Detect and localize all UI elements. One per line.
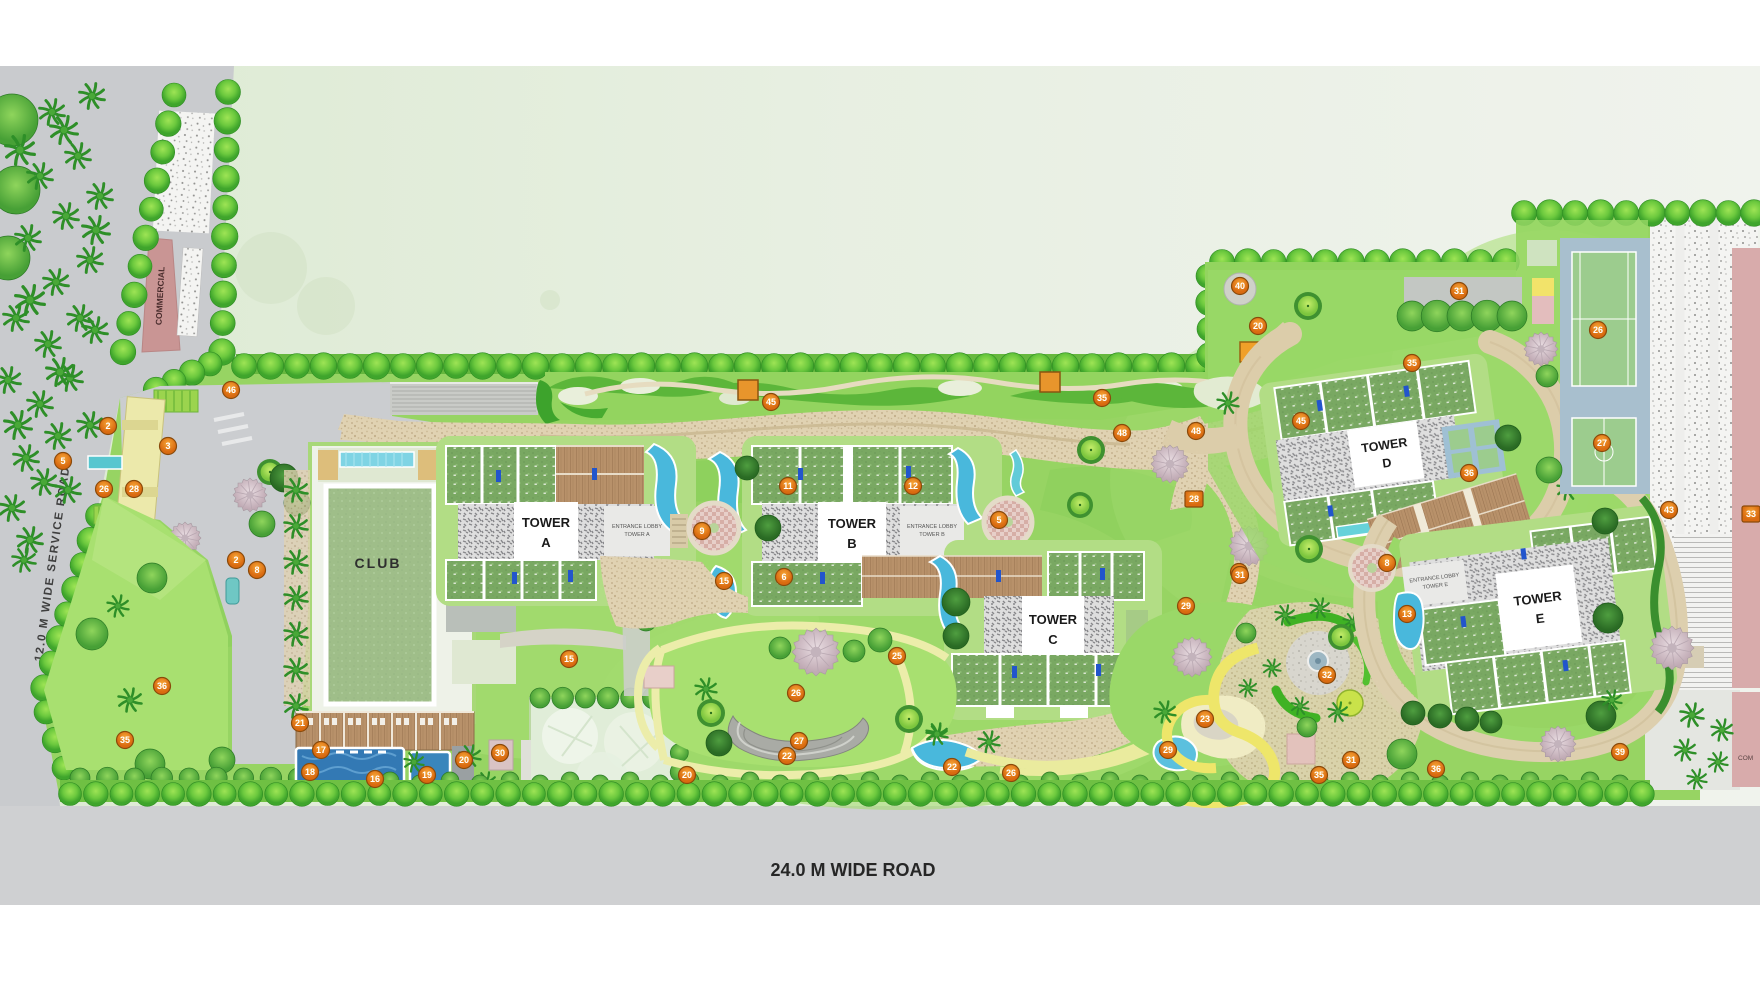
svg-text:27: 27 xyxy=(1597,438,1607,448)
svg-text:22: 22 xyxy=(947,762,957,772)
svg-text:35: 35 xyxy=(1314,770,1324,780)
svg-text:ENTRANCE LOBBY: ENTRANCE LOBBY xyxy=(907,524,957,530)
svg-text:A: A xyxy=(541,535,551,550)
svg-text:36: 36 xyxy=(157,681,167,691)
svg-text:COM: COM xyxy=(1738,755,1753,762)
svg-text:ENTRANCE LOBBY: ENTRANCE LOBBY xyxy=(612,524,662,530)
svg-text:28: 28 xyxy=(1189,494,1199,504)
svg-text:CLUB: CLUB xyxy=(355,555,402,571)
svg-text:26: 26 xyxy=(791,688,801,698)
svg-text:20: 20 xyxy=(459,755,469,765)
svg-text:27: 27 xyxy=(794,736,804,746)
svg-text:22: 22 xyxy=(782,751,792,761)
svg-text:35: 35 xyxy=(1407,358,1417,368)
svg-text:39: 39 xyxy=(1615,747,1625,757)
svg-text:30: 30 xyxy=(495,748,505,758)
svg-text:16: 16 xyxy=(370,774,380,784)
svg-text:TOWER A: TOWER A xyxy=(624,532,650,538)
svg-text:19: 19 xyxy=(422,770,432,780)
svg-text:9: 9 xyxy=(699,526,704,536)
svg-text:43: 43 xyxy=(1664,505,1674,515)
svg-text:20: 20 xyxy=(1253,321,1263,331)
svg-text:31: 31 xyxy=(1235,570,1245,580)
svg-text:C: C xyxy=(1048,632,1058,647)
svg-text:48: 48 xyxy=(1117,428,1127,438)
svg-text:B: B xyxy=(847,536,856,551)
svg-text:32: 32 xyxy=(1322,670,1332,680)
svg-text:TOWER: TOWER xyxy=(828,516,877,531)
svg-text:20: 20 xyxy=(682,770,692,780)
svg-text:31: 31 xyxy=(1346,755,1356,765)
svg-text:8: 8 xyxy=(254,565,259,575)
svg-text:TOWER: TOWER xyxy=(522,515,571,530)
svg-text:5: 5 xyxy=(996,515,1001,525)
svg-text:23: 23 xyxy=(1200,714,1210,724)
svg-text:21: 21 xyxy=(295,718,305,728)
svg-text:3: 3 xyxy=(165,441,170,451)
svg-text:TOWER B: TOWER B xyxy=(919,532,945,538)
svg-text:26: 26 xyxy=(1006,768,1016,778)
svg-text:35: 35 xyxy=(1097,393,1107,403)
svg-text:15: 15 xyxy=(564,654,574,664)
svg-text:36: 36 xyxy=(1431,764,1441,774)
svg-text:36: 36 xyxy=(1464,468,1474,478)
svg-text:24.0 M WIDE ROAD: 24.0 M WIDE ROAD xyxy=(770,860,935,880)
svg-text:17: 17 xyxy=(316,745,326,755)
svg-text:TOWER: TOWER xyxy=(1029,612,1078,627)
svg-text:6: 6 xyxy=(781,572,786,582)
svg-text:45: 45 xyxy=(766,397,776,407)
svg-text:D: D xyxy=(1381,456,1392,471)
svg-text:18: 18 xyxy=(305,767,315,777)
svg-text:25: 25 xyxy=(892,651,902,661)
svg-text:28: 28 xyxy=(129,484,139,494)
svg-text:35: 35 xyxy=(120,735,130,745)
svg-text:33: 33 xyxy=(1746,509,1756,519)
svg-text:29: 29 xyxy=(1163,745,1173,755)
svg-text:2: 2 xyxy=(105,421,110,431)
svg-text:31: 31 xyxy=(1454,286,1464,296)
svg-text:46: 46 xyxy=(226,385,236,395)
svg-text:2: 2 xyxy=(233,555,238,565)
svg-text:26: 26 xyxy=(99,484,109,494)
svg-text:12: 12 xyxy=(908,481,918,491)
svg-text:11: 11 xyxy=(783,481,793,491)
svg-text:40: 40 xyxy=(1235,281,1245,291)
svg-text:8: 8 xyxy=(1384,558,1389,568)
svg-text:15: 15 xyxy=(719,576,729,586)
svg-text:26: 26 xyxy=(1593,325,1603,335)
svg-text:45: 45 xyxy=(1296,416,1306,426)
svg-text:13: 13 xyxy=(1402,609,1412,619)
svg-text:48: 48 xyxy=(1191,426,1201,436)
svg-text:29: 29 xyxy=(1181,601,1191,611)
svg-text:5: 5 xyxy=(60,456,65,466)
